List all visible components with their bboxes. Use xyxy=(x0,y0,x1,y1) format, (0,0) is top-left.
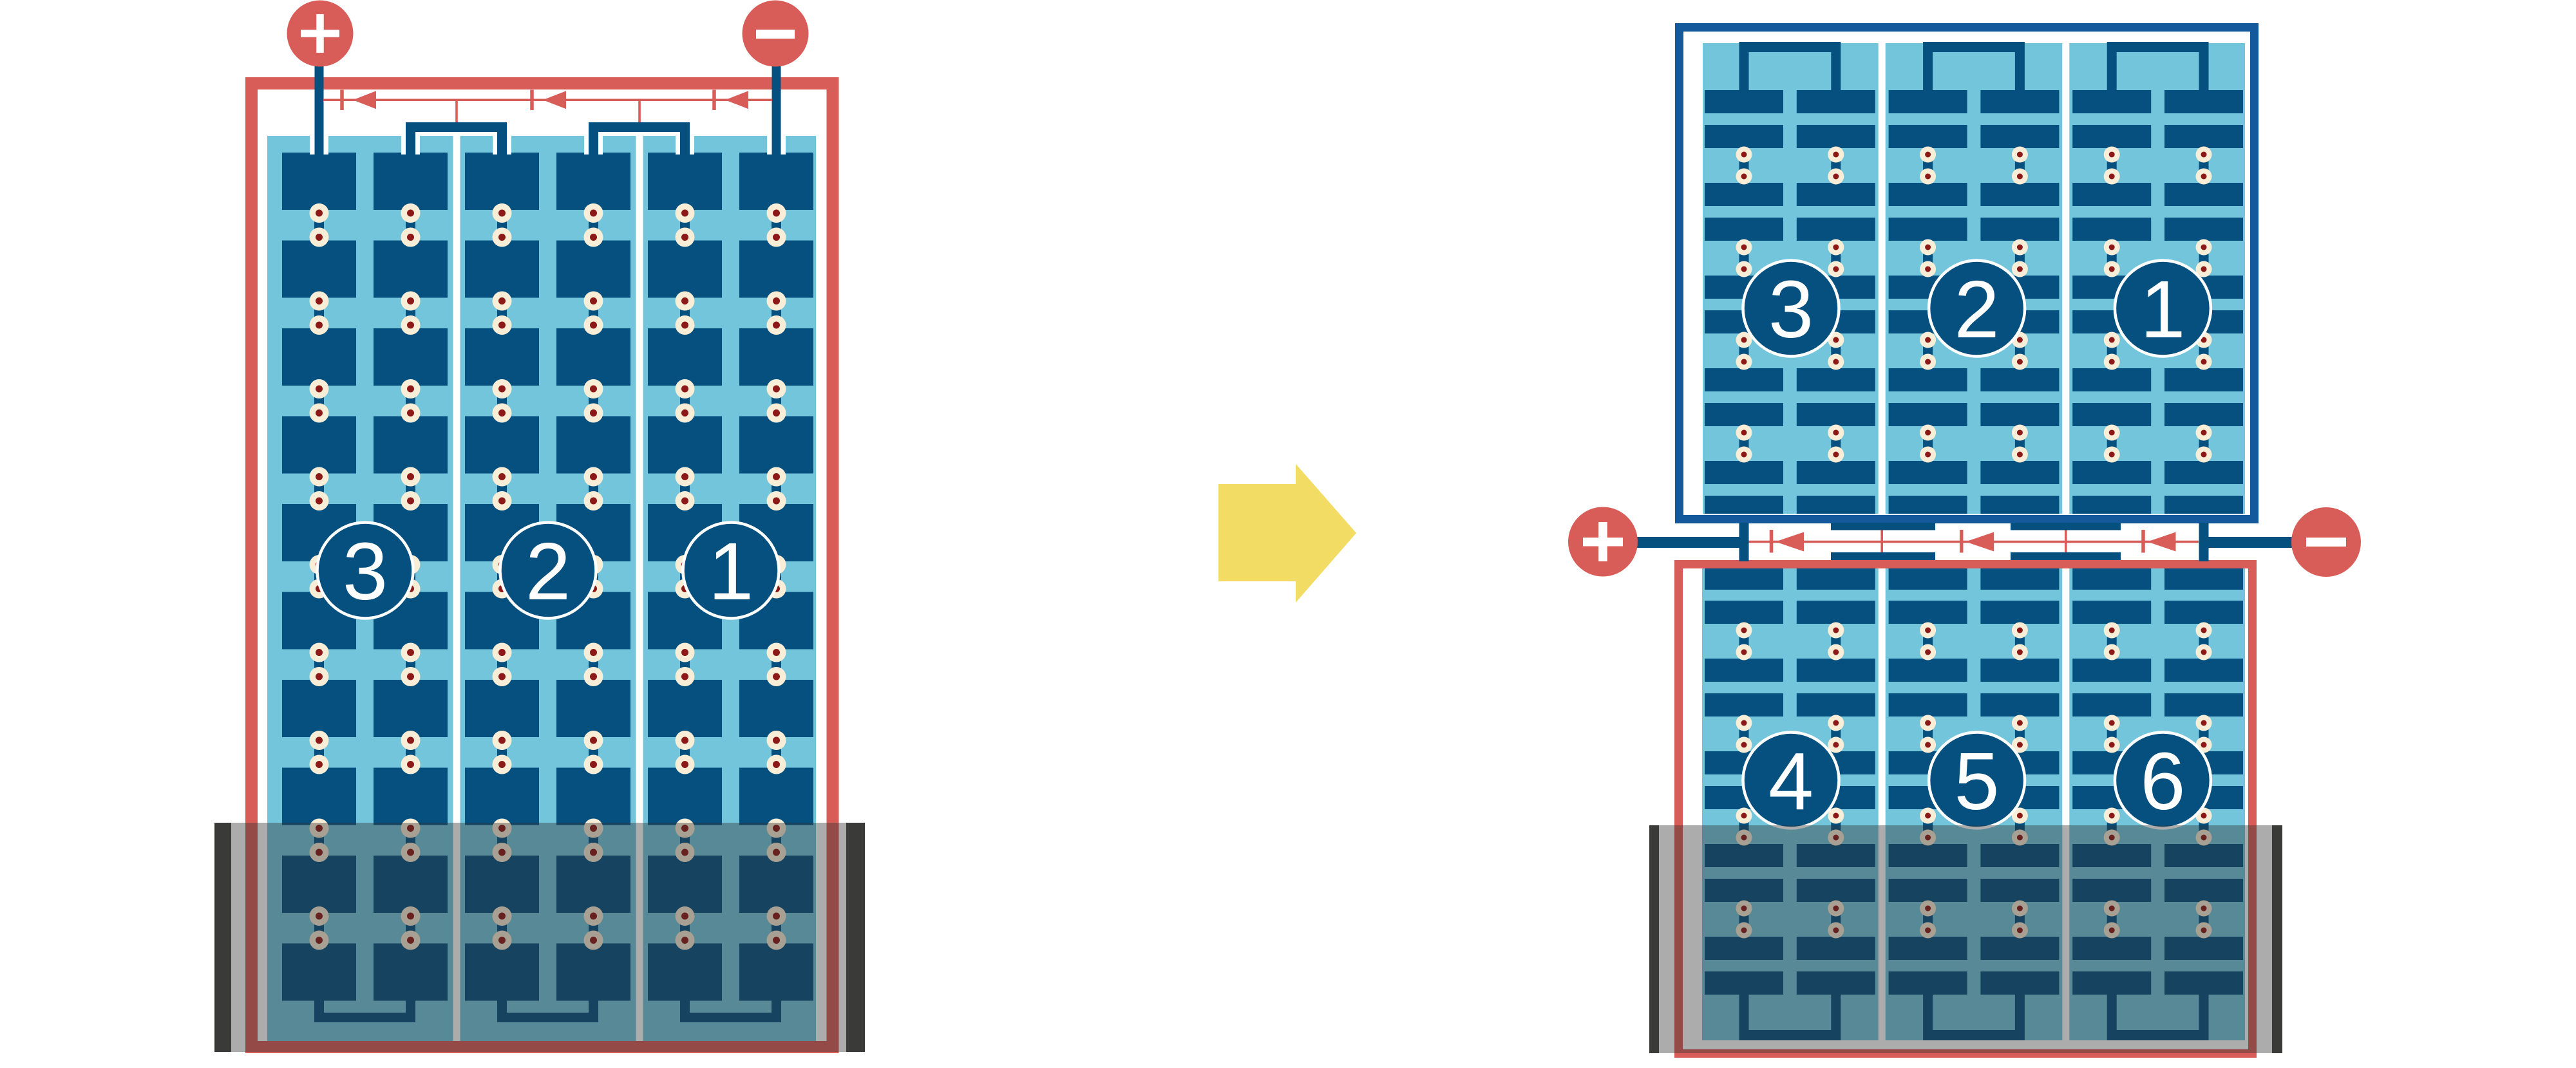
svg-text:6: 6 xyxy=(2140,736,2185,827)
svg-text:2: 2 xyxy=(526,526,571,617)
svg-text:1: 1 xyxy=(2140,264,2185,355)
svg-text:4: 4 xyxy=(1768,736,1814,827)
svg-text:5: 5 xyxy=(1955,736,2000,827)
svg-text:3: 3 xyxy=(1768,264,1814,355)
svg-text:1: 1 xyxy=(708,526,753,617)
svg-text:2: 2 xyxy=(1955,264,2000,355)
svg-text:3: 3 xyxy=(343,526,388,617)
